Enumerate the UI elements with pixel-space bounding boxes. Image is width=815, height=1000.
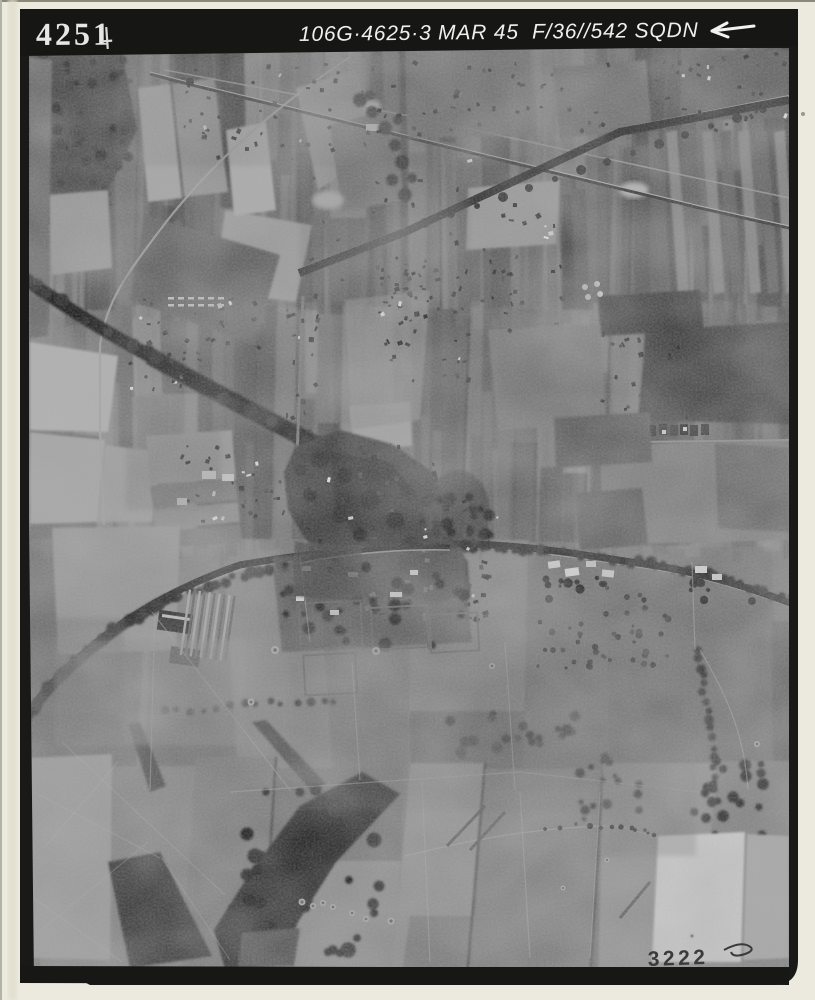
svg-text:4251: 4251 (36, 16, 112, 52)
svg-text:106G·4625·3 MAR 45 F/36//542: 106G·4625·3 MAR 45 F/36//542 SQDN (299, 19, 699, 46)
svg-text:3222: 3222 (647, 946, 708, 971)
